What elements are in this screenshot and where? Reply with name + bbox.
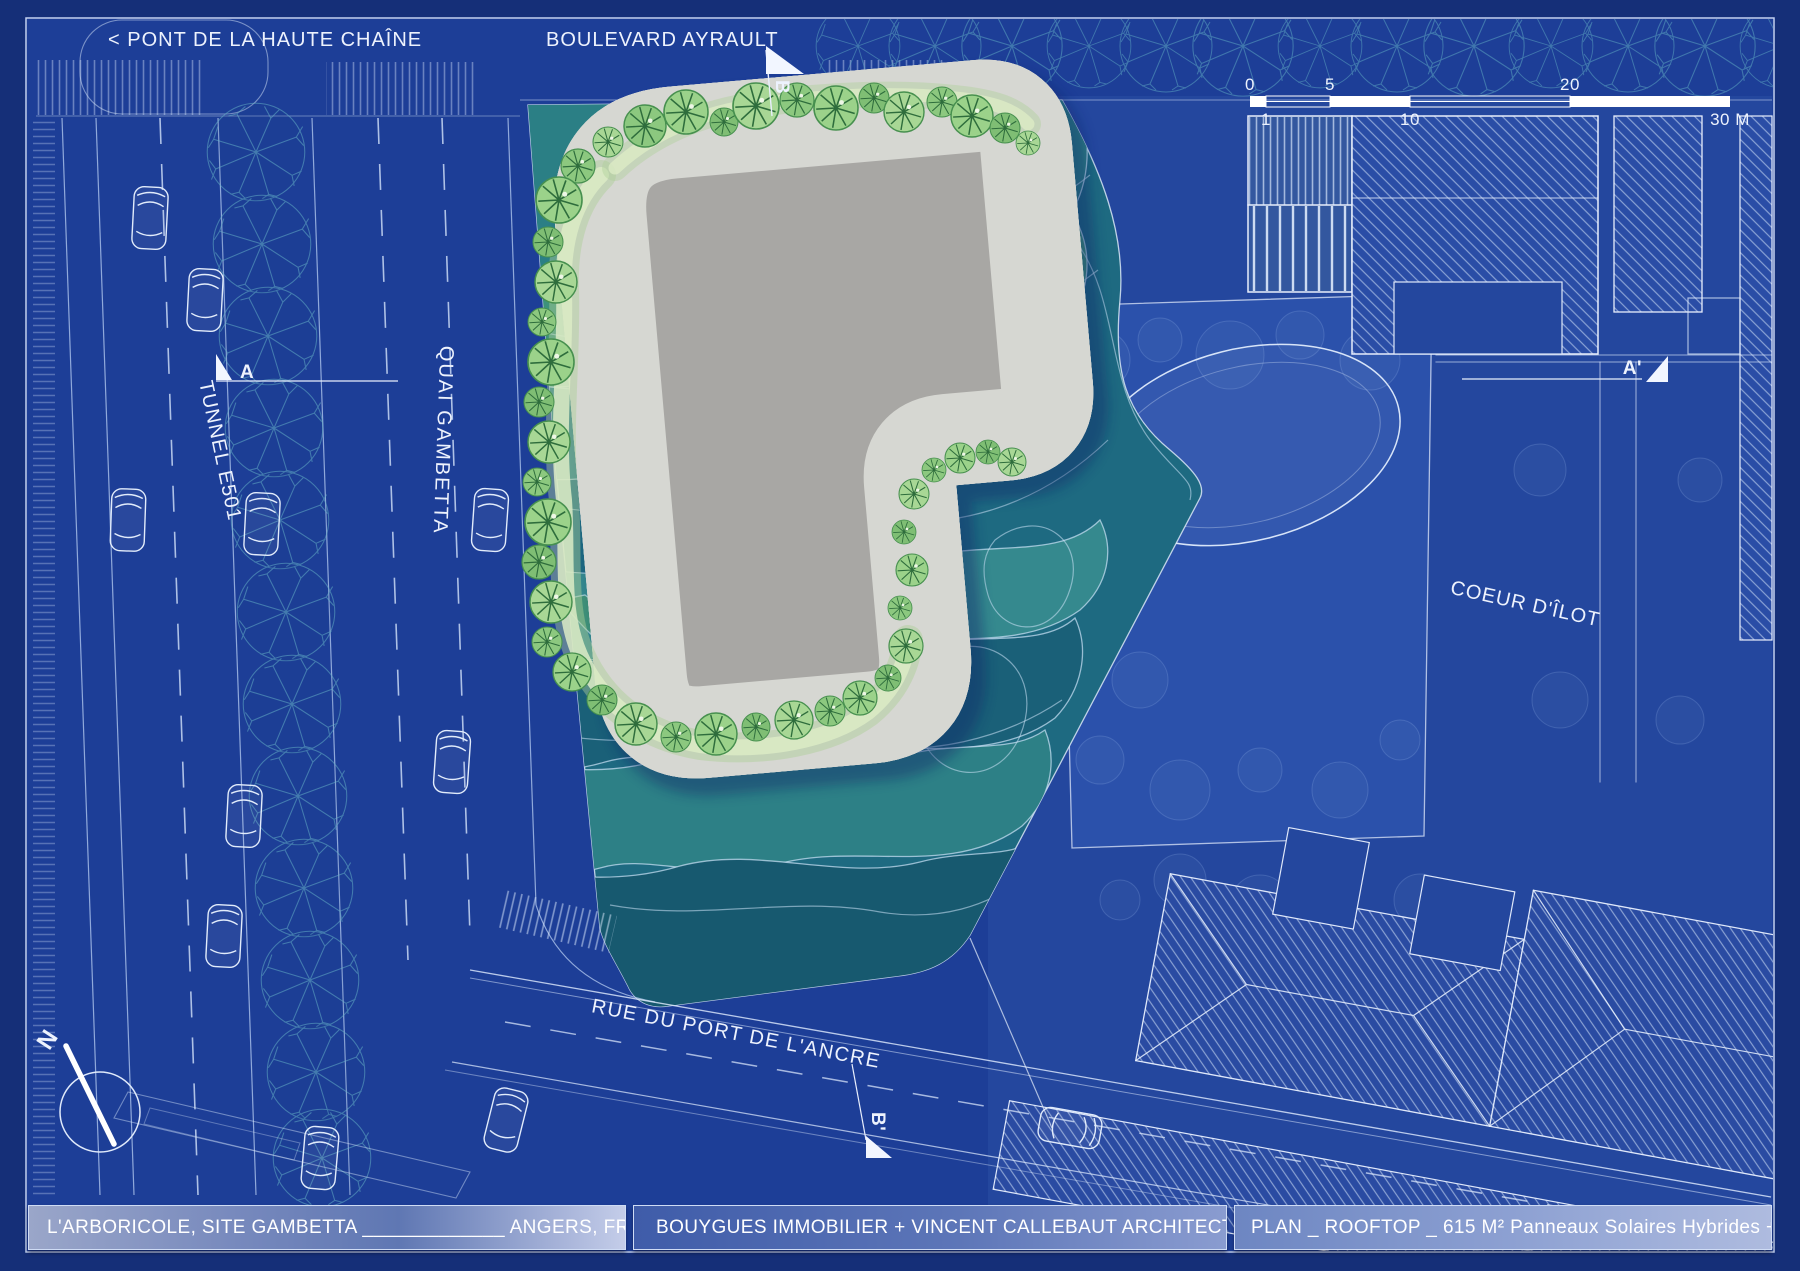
scale-20: 20 <box>1560 75 1580 94</box>
street-label-pont: < PONT DE LA HAUTE CHAÎNE <box>108 28 422 51</box>
scale-1: 1 <box>1261 110 1271 129</box>
title-block-clients: BOUYGUES IMMOBILIER + VINCENT CALLEBAUT … <box>633 1205 1227 1250</box>
section-label-b-prime: B' <box>867 1112 888 1131</box>
section-label-b: B <box>771 80 792 94</box>
title-block-sheet: PLAN _ ROOFTOP _ 615 M² Panneaux Solaire… <box>1234 1205 1772 1250</box>
street-label-boulevard: BOULEVARD AYRAULT <box>546 29 779 51</box>
title-bar: L'ARBORICOLE, SITE GAMBETTA ____________… <box>28 1205 1772 1250</box>
grid-roof-building <box>1248 116 1352 292</box>
scale-0: 0 <box>1245 75 1255 94</box>
section-label-a: A <box>240 362 254 383</box>
site-plan-drawing: < PONT DE LA HAUTE CHAÎNE BOULEVARD AYRA… <box>0 0 1800 1271</box>
scale-30m: 30 M <box>1710 110 1750 129</box>
site-plan-page: < PONT DE LA HAUTE CHAÎNE BOULEVARD AYRA… <box>0 0 1800 1271</box>
section-label-a-prime: A' <box>1623 358 1642 379</box>
title-block-project: L'ARBORICOLE, SITE GAMBETTA ____________… <box>28 1205 626 1250</box>
scale-5: 5 <box>1325 75 1335 94</box>
hatched-building-north <box>1352 116 1598 354</box>
scale-10: 10 <box>1400 110 1420 129</box>
